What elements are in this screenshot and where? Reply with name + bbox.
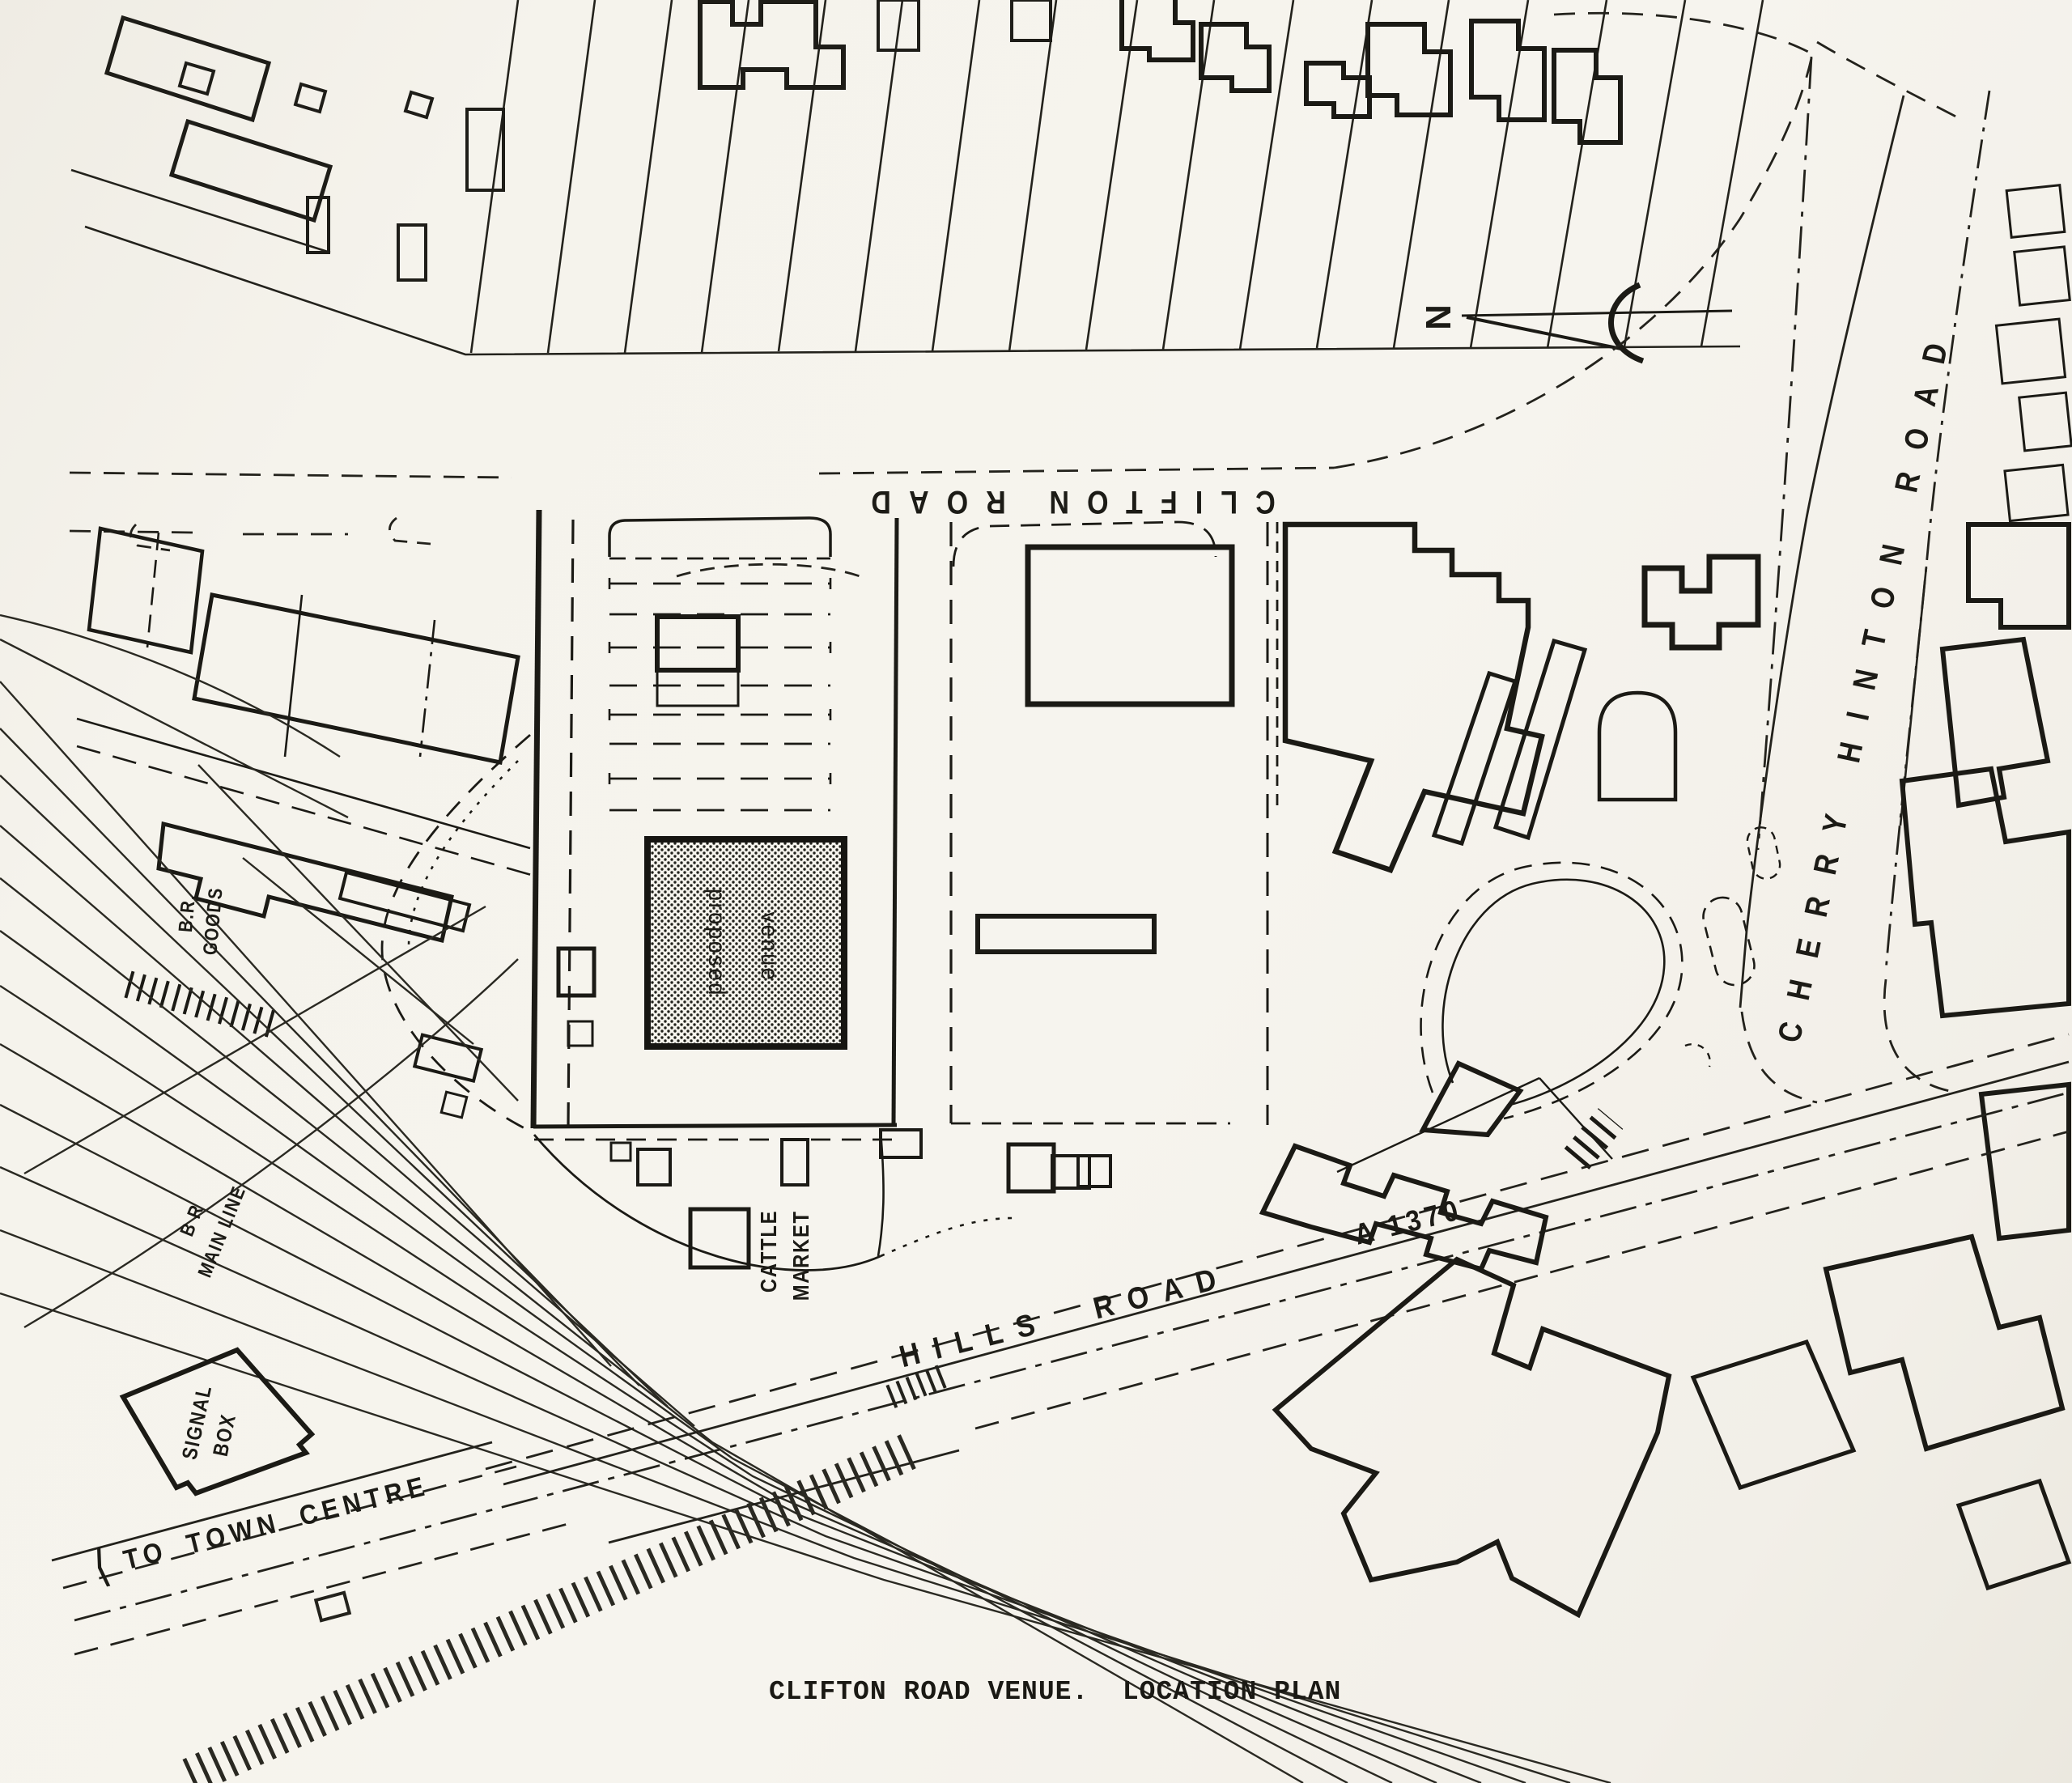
hills-road-lines xyxy=(52,1034,2069,1654)
middle-parcel xyxy=(951,522,1267,1191)
east-site-buildings xyxy=(1277,522,1782,1172)
proposed-venue-word1: proposed xyxy=(704,889,728,998)
cherry-hinton-road xyxy=(1740,57,1989,1102)
north-label: N xyxy=(1421,304,1457,330)
north-arrow xyxy=(1462,285,1732,361)
location-plan-page: CLIFTON ROAD CHERRY HINTON ROAD HILLS RO… xyxy=(0,0,2072,1783)
top-left-buildings xyxy=(107,0,1051,280)
goods-yard-buildings xyxy=(77,529,534,1118)
cattle-market-line2: MARKET xyxy=(790,1212,813,1301)
clifton-road-label: CLIFTON ROAD xyxy=(841,486,1289,518)
proposed-venue-block xyxy=(647,839,844,1046)
cattle-market-line1: CATTLE xyxy=(758,1207,780,1297)
proposed-venue-word2: venue xyxy=(757,896,781,998)
map-caption: CLIFTON ROAD VENUE. LOCATION PLAN xyxy=(769,1677,1341,1707)
